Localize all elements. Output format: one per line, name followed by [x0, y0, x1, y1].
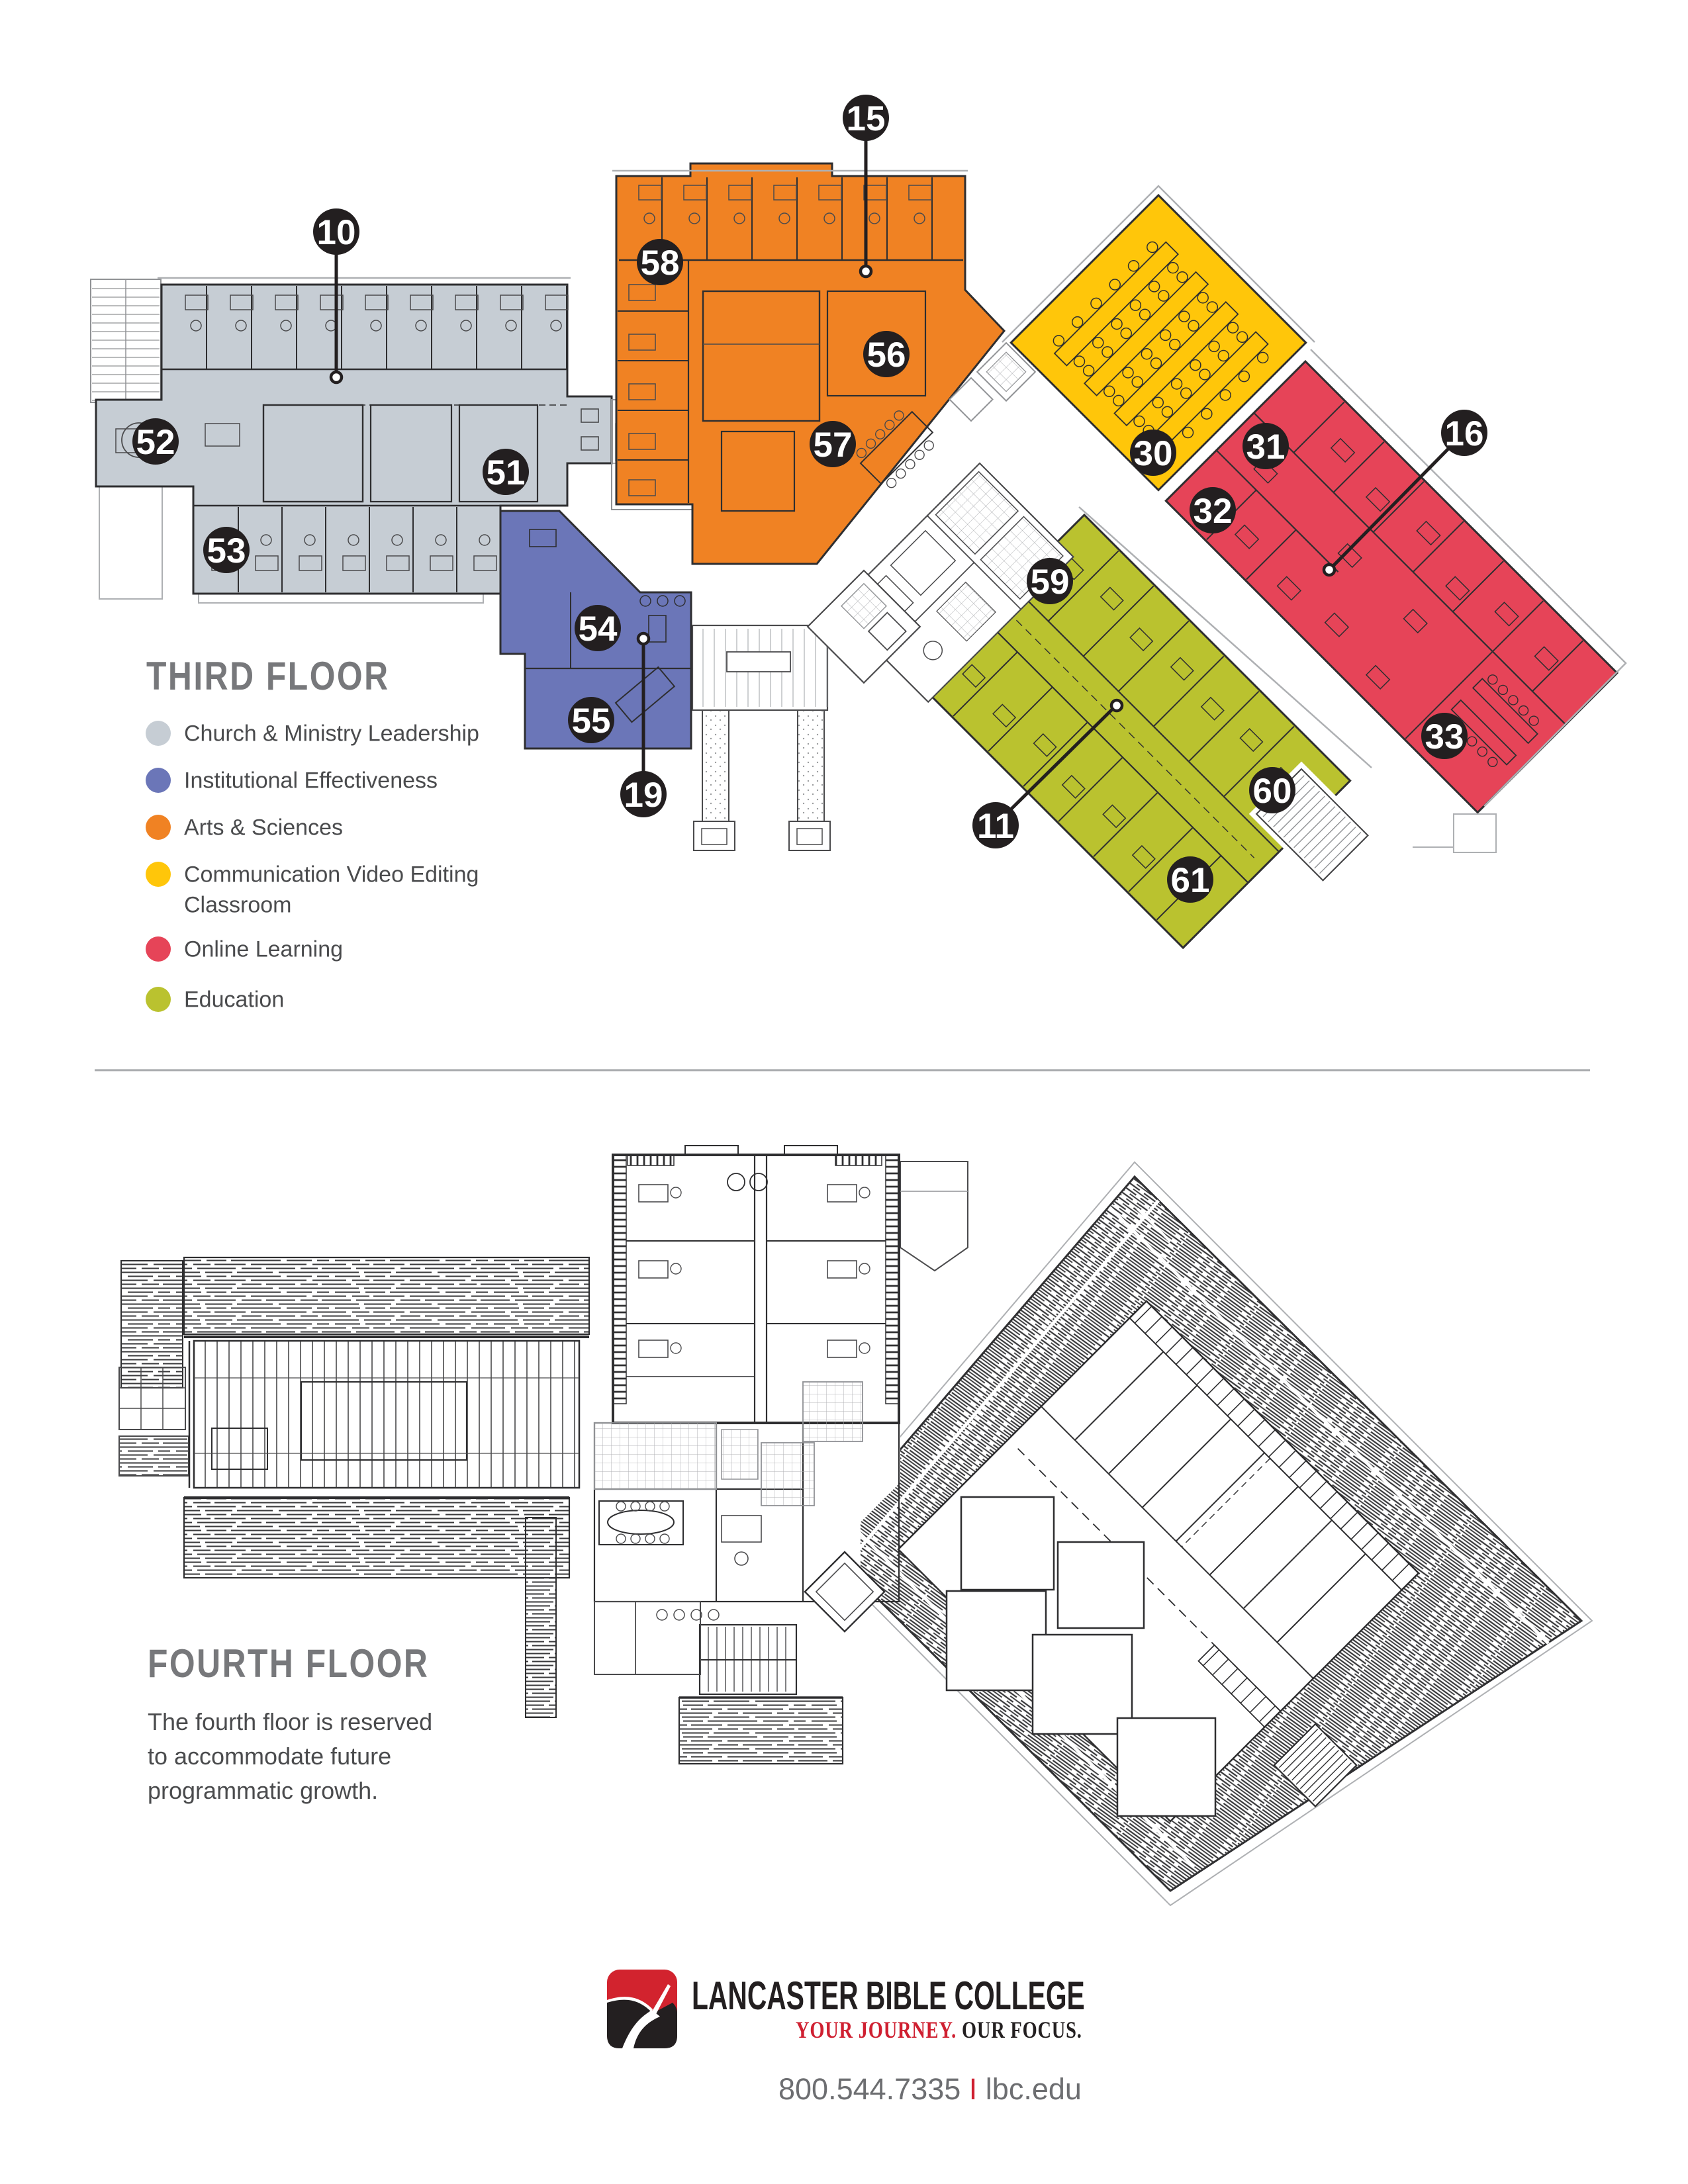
svg-text:11: 11	[977, 807, 1014, 846]
svg-text:61: 61	[1171, 861, 1210, 900]
svg-text:60: 60	[1253, 772, 1292, 811]
svg-text:32: 32	[1194, 492, 1233, 531]
svg-text:10: 10	[317, 213, 356, 252]
svg-text:51: 51	[487, 453, 526, 492]
svg-text:FOURTH FLOOR: FOURTH FLOOR	[148, 1641, 429, 1686]
svg-text:Institutional Effectiveness: Institutional Effectiveness	[184, 768, 438, 794]
svg-text:54: 54	[579, 610, 618, 649]
svg-text:16: 16	[1445, 414, 1484, 453]
svg-text:19: 19	[624, 776, 663, 815]
svg-text:LANCASTER BIBLE COLLEGE: LANCASTER BIBLE COLLEGE	[692, 1974, 1085, 2018]
svg-text:Classroom: Classroom	[184, 893, 291, 918]
svg-text:31: 31	[1246, 428, 1286, 467]
svg-text:Education: Education	[184, 987, 284, 1013]
svg-text:YOUR JOURNEY. OUR FOCUS.: YOUR JOURNEY. OUR FOCUS.	[796, 2017, 1082, 2044]
svg-text:Church & Ministry Leadership: Church & Ministry Leadership	[184, 721, 479, 747]
svg-text:Online Learning: Online Learning	[184, 937, 343, 962]
svg-text:Communication Video Editing: Communication Video Editing	[184, 862, 479, 887]
svg-text:The fourth floor is reserved: The fourth floor is reserved	[148, 1708, 432, 1735]
svg-text:56: 56	[867, 336, 906, 375]
svg-text:programmatic growth.: programmatic growth.	[148, 1777, 378, 1804]
svg-text:THIRD FLOOR: THIRD FLOOR	[146, 654, 390, 698]
svg-text:15: 15	[847, 99, 886, 138]
svg-text:52: 52	[136, 423, 175, 462]
svg-text:30: 30	[1134, 434, 1173, 473]
svg-text:Arts & Sciences: Arts & Sciences	[184, 815, 343, 841]
svg-text:33: 33	[1425, 717, 1464, 756]
svg-text:58: 58	[641, 244, 680, 283]
svg-text:53: 53	[207, 531, 246, 570]
svg-text:59: 59	[1031, 563, 1070, 602]
svg-text:to accommodate future: to accommodate future	[148, 1743, 391, 1770]
svg-text:57: 57	[814, 426, 853, 465]
svg-text:800.544.7335 I lbc.edu: 800.544.7335 I lbc.edu	[778, 2072, 1082, 2106]
svg-text:55: 55	[572, 702, 611, 741]
